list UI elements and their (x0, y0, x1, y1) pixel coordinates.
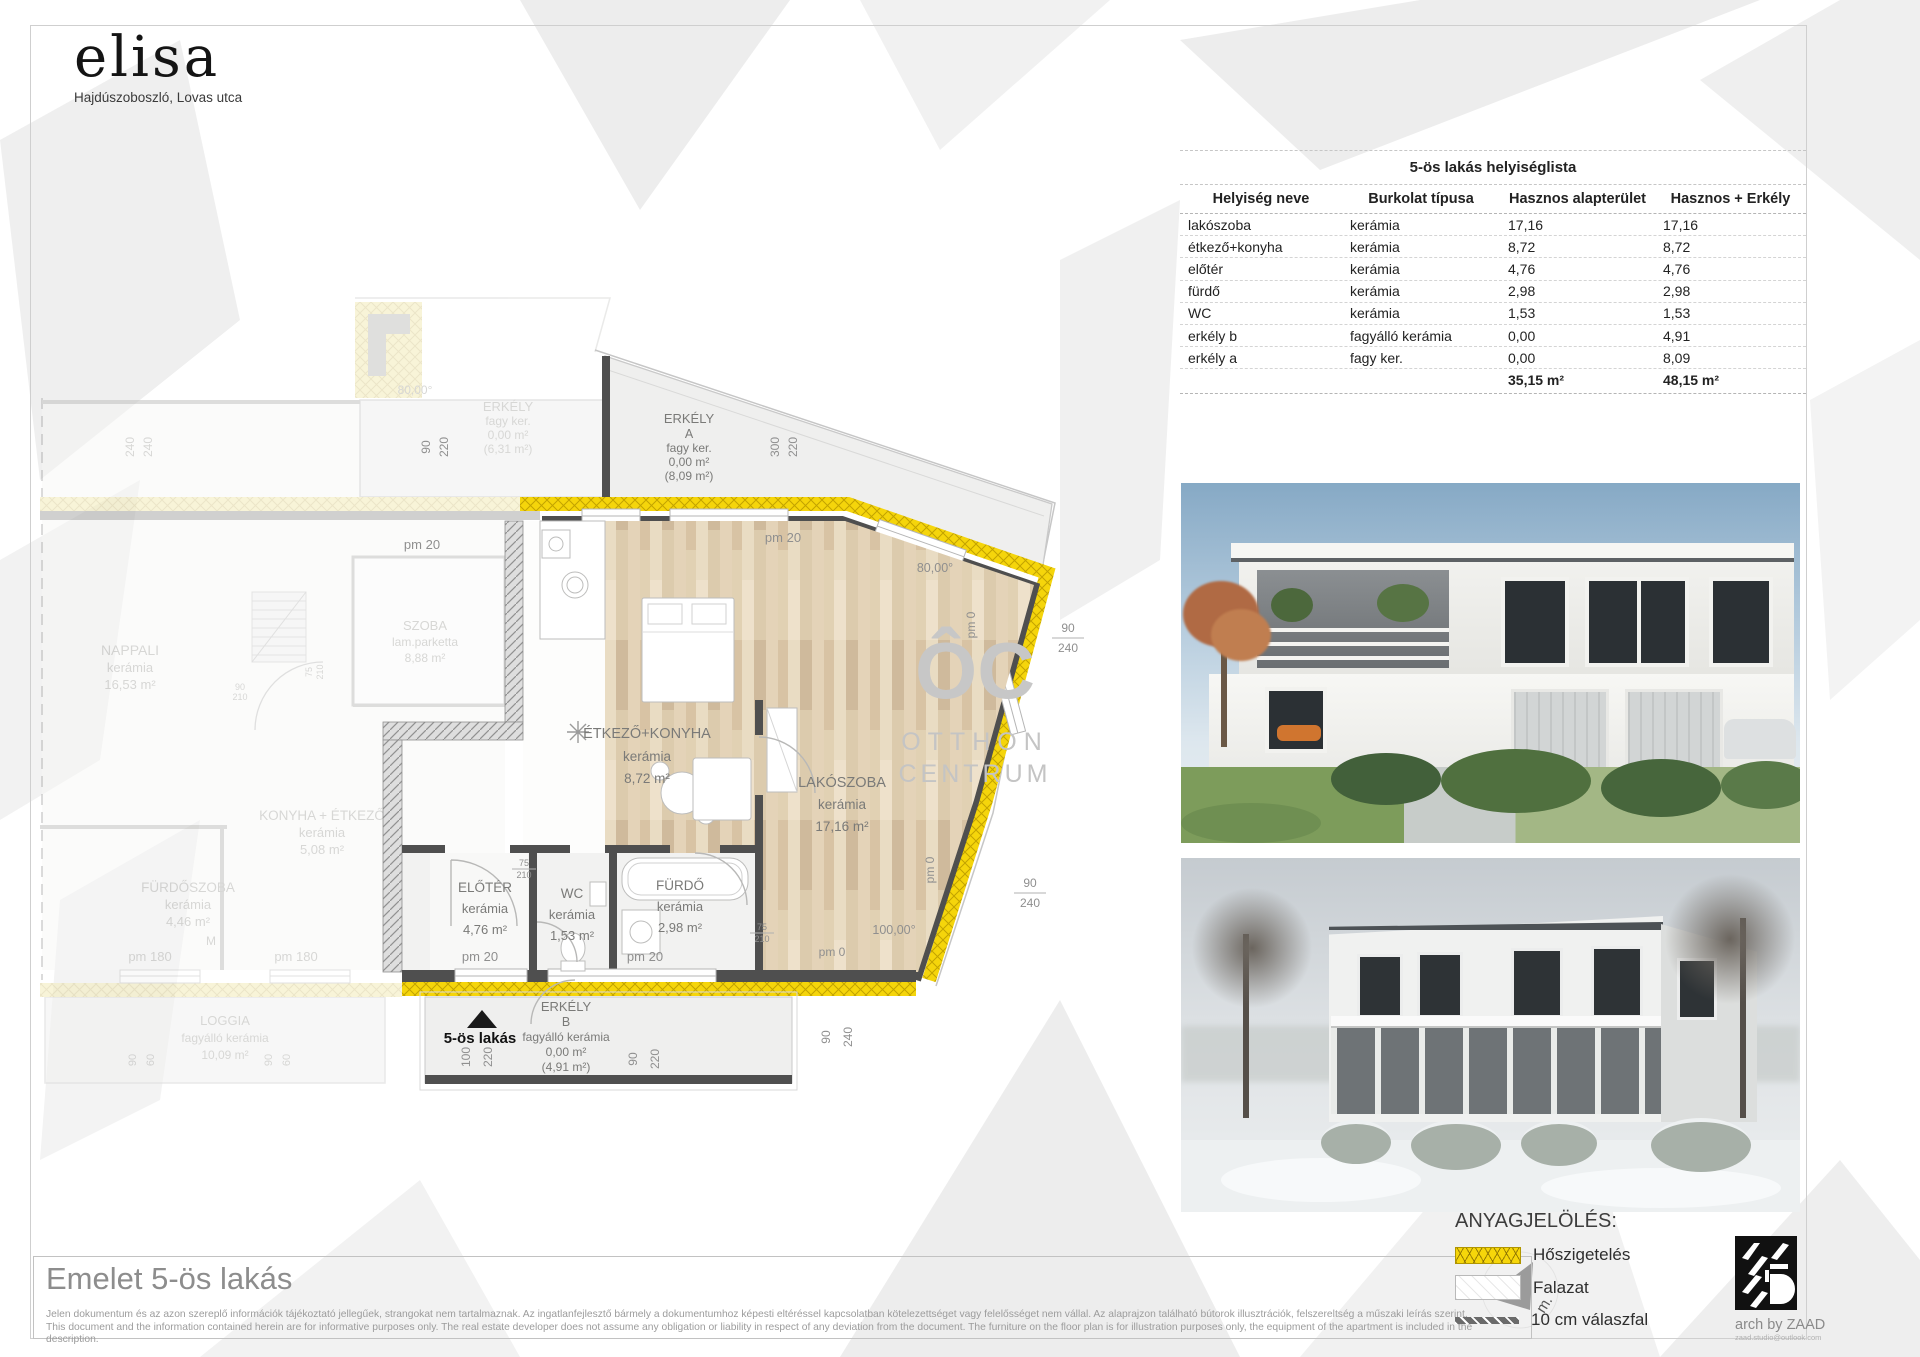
brand-logo: elisa Hajdúszoboszló, Lovas utca (74, 28, 242, 105)
legend-label: Hőszigetelés (1533, 1245, 1630, 1265)
dim: 60 (281, 1054, 293, 1066)
watermark-text: CENTRUM (899, 760, 1052, 788)
label: lam.parketta (392, 635, 458, 649)
label: (4,91 m²) (542, 1060, 591, 1074)
snow-drift (1221, 1158, 1421, 1202)
dim: 90 (419, 440, 433, 454)
party-wall (505, 521, 523, 722)
cell: kerámia (1342, 281, 1500, 302)
credit-email: zaad.studio@outlook.com (1735, 1333, 1801, 1342)
footer: Emelet 5-ös lakás Jelen dokumentum és az… (33, 1256, 1532, 1339)
dim: 75 (304, 667, 314, 677)
car (1724, 719, 1796, 759)
label: fagyálló kerámia (181, 1031, 269, 1045)
cell: 8,72 (1655, 236, 1806, 257)
page-title: Emelet 5-ös lakás (46, 1261, 292, 1297)
otthon-centrum-watermark: ÔC OTTHON CENTRUM (899, 626, 1052, 788)
dim-pm20: pm 20 (404, 537, 440, 552)
cell: 17,16 (1655, 214, 1806, 235)
dim: 90 (1023, 876, 1037, 890)
cell: fürdő (1180, 281, 1342, 302)
col-header-net-area: Hasznos alapterület (1500, 191, 1655, 207)
cell (1342, 369, 1500, 390)
dim: 90 (1061, 621, 1075, 635)
cell: étkező+konyha (1180, 236, 1342, 257)
wc-label: WC (561, 886, 584, 901)
cell: 4,76 (1500, 258, 1655, 279)
label: (6,31 m²) (484, 442, 533, 456)
label: 4,46 m² (166, 914, 211, 929)
dim: 90 (263, 1054, 275, 1066)
legend-label: 10 cm válaszfal (1531, 1310, 1648, 1330)
roof (1231, 543, 1794, 558)
dim-pm20: pm 20 (627, 949, 663, 964)
table-row: erkély afagy ker.0,008,09 (1180, 347, 1806, 369)
label: 2,98 m² (658, 920, 703, 935)
dim: 240 (841, 1027, 855, 1047)
label: B (562, 1015, 570, 1029)
dim: 90 (626, 1052, 640, 1066)
balcony-a-label: ERKÉLY (664, 411, 715, 426)
dim: 220 (437, 437, 451, 457)
ground-colonnade (1331, 1028, 1661, 1114)
angle-label: 80,00° (398, 383, 433, 397)
window (1265, 687, 1327, 753)
table-row: előtérkerámia4,764,76 (1180, 258, 1806, 280)
dim: 220 (786, 437, 800, 457)
dim-90-240: 90 240 (1014, 876, 1046, 910)
cell: 4,91 (1655, 325, 1806, 346)
snowy-shrub (1651, 1118, 1751, 1172)
table-row: erkély bfagyálló kerámia0,004,91 (1180, 325, 1806, 347)
label: kerámia (657, 899, 704, 914)
cell: kerámia (1342, 214, 1500, 235)
dim: 90 (819, 1030, 833, 1044)
cell (1180, 369, 1342, 390)
label: 17,16 m² (815, 819, 869, 834)
dim-pm0: pm 0 (923, 856, 937, 883)
label: kerámia (107, 660, 154, 675)
cell: kerámia (1342, 258, 1500, 279)
bush (1601, 759, 1721, 817)
cell: erkély b (1180, 325, 1342, 346)
col-header-net-plus-balcony: Hasznos + Erkély (1655, 191, 1806, 207)
neighbor-erkely-label: ERKÉLY (483, 399, 534, 414)
watermark-text: OTTHON (901, 728, 1049, 756)
unit-label: 5-ös lakás (444, 1030, 517, 1047)
masonry-swatch-icon (1455, 1275, 1521, 1300)
dim: 90 (235, 682, 245, 692)
cell: lakószoba (1180, 214, 1342, 235)
snow-drift (1541, 1168, 1781, 1208)
disclaimer-hu: Jelen dokumentum és az azon szereplő inf… (46, 1309, 1521, 1322)
neighbor-nappali-label: NAPPALI (101, 642, 159, 658)
table-title: 5-ös lakás helyiséglista (1180, 150, 1806, 185)
table-totals-row: 35,15 m² 48,15 m² (1180, 369, 1806, 393)
cell: erkély a (1180, 347, 1342, 368)
hall-label: ELŐTÉR (458, 880, 512, 895)
living-room-label: LAKÓSZOBA (798, 774, 886, 791)
bare-tree-branches (1187, 888, 1317, 1008)
dim: 220 (481, 1047, 495, 1067)
label: A (685, 427, 694, 441)
architect-credit: arch by ZAAD zaad.studio@outlook.com (1735, 1236, 1801, 1342)
label: 10,09 m² (201, 1048, 248, 1062)
window (1357, 954, 1403, 1018)
legend-title: ANYAGJELÖLÉS: (1455, 1210, 1805, 1233)
building-render-winter (1181, 858, 1800, 1212)
table-header: Helyiség neve Burkolat típusa Hasznos al… (1180, 185, 1806, 214)
balcony-slab (1331, 1016, 1661, 1026)
label: fagy ker. (666, 441, 711, 455)
dim: 60 (145, 1054, 157, 1066)
partition-swatch-icon (1455, 1317, 1519, 1324)
dim-pm180: pm 180 (274, 949, 317, 964)
label: fagyálló kerámia (522, 1030, 610, 1044)
disclaimer-en: This document and the information contai… (46, 1322, 1521, 1347)
cell: 0,00 (1500, 347, 1655, 368)
label: fagy ker. (485, 414, 530, 428)
tree-foliage (1211, 609, 1271, 661)
dim: 240 (1020, 896, 1040, 910)
room-list-table: 5-ös lakás helyiséglista Helyiség neve B… (1180, 150, 1806, 394)
patio-furniture (1277, 725, 1321, 741)
kitchen-label: ÉTKEZŐ+KONYHA (583, 725, 711, 742)
angle-label: 80,00° (917, 561, 953, 575)
total-net-area: 35,15 m² (1500, 369, 1655, 390)
label: 0,00 m² (546, 1045, 587, 1059)
dim: 240 (123, 437, 137, 457)
dim: 300 (768, 437, 782, 457)
label: 1,53 m² (550, 928, 595, 943)
dim: 210 (232, 692, 247, 702)
window (1591, 946, 1643, 1018)
cell: fagyálló kerámia (1342, 325, 1500, 346)
floor-plan: ERKÉLY fagy ker. 0,00 m² (6,31 m²) NAPPA… (30, 280, 1090, 1110)
stairs (252, 592, 306, 662)
table-row: étkező+konyhakerámia8,728,72 (1180, 236, 1806, 258)
dim: 210 (516, 870, 531, 880)
dim-pm20: pm 20 (765, 530, 801, 545)
window (1511, 948, 1563, 1018)
label: kerámia (818, 797, 867, 812)
label: kerámia (299, 825, 346, 840)
label: kerámia (549, 907, 596, 922)
cell: 8,09 (1655, 347, 1806, 368)
label: 16,53 m² (104, 677, 156, 692)
dim: 100 (459, 1047, 473, 1067)
dim: 210 (315, 664, 325, 679)
neighbor-szoba-label: SZOBA (403, 618, 447, 633)
neighbor-konyha-label: KONYHA + ÉTKEZŐ (259, 808, 385, 823)
cell: előtér (1180, 258, 1342, 279)
angle-label: 100,00° (872, 923, 915, 937)
label: (8,09 m²) (665, 469, 714, 483)
dim-pm0: pm 0 (819, 945, 846, 959)
dim: 220 (648, 1049, 662, 1069)
snowy-shrub (1411, 1120, 1501, 1170)
neighbor-loggia-label: LOGGIA (200, 1013, 250, 1028)
snowy-shrub (1321, 1120, 1391, 1164)
dim-90-240: 90 240 (1052, 621, 1084, 655)
bush (1181, 803, 1321, 843)
balcony (1257, 570, 1449, 668)
table-row: fürdőkerámia2,982,98 (1180, 281, 1806, 303)
label: 4,76 m² (463, 922, 508, 937)
dim: 75 (757, 922, 767, 932)
closet-m-label: M (206, 934, 216, 948)
cell: 4,76 (1655, 258, 1806, 279)
window (1417, 952, 1463, 1018)
building-render-summer (1181, 483, 1800, 843)
dim: 240 (141, 437, 155, 457)
dim-pm180: pm 180 (128, 949, 171, 964)
table-row: WCkerámia1,531,53 (1180, 303, 1806, 325)
balcony-b-label: ERKÉLY (541, 999, 592, 1014)
dim: 75 (519, 858, 529, 868)
cell: 2,98 (1655, 281, 1806, 302)
cell: fagy ker. (1342, 347, 1500, 368)
label: 0,00 m² (669, 455, 710, 469)
legend-label: Falazat (1533, 1278, 1589, 1298)
label: 0,00 m² (488, 428, 529, 442)
label: kerámia (462, 901, 509, 916)
window (1585, 577, 1689, 667)
garage-door (1625, 689, 1723, 771)
cell: WC (1180, 303, 1342, 324)
label: 5,08 m² (300, 842, 345, 857)
cell: 17,16 (1500, 214, 1655, 235)
insulation-swatch-icon (1455, 1247, 1521, 1264)
bare-tree-branches (1660, 874, 1800, 1004)
cell: 8,72 (1500, 236, 1655, 257)
table-row: lakószobakerámia17,1617,16 (1180, 214, 1806, 236)
brand-subtitle: Hajdúszoboszló, Lovas utca (74, 90, 242, 105)
bathroom-label: FÜRDŐ (656, 878, 704, 893)
label: kerámia (623, 749, 672, 764)
watermark-logo: ÔC (915, 626, 1035, 715)
neighbor-furdoszoba-label: FÜRDŐSZOBA (141, 880, 235, 895)
window (1501, 577, 1569, 667)
dim-pm20: pm 20 (462, 949, 498, 964)
col-header-flooring: Burkolat típusa (1342, 191, 1500, 207)
cell: 2,98 (1500, 281, 1655, 302)
zaad-logo-icon (1735, 1236, 1797, 1310)
snowy-shrub (1521, 1120, 1597, 1166)
dim: 240 (1058, 641, 1078, 655)
window (1709, 577, 1773, 667)
cell: kerámia (1342, 303, 1500, 324)
col-header-room: Helyiség neve (1180, 191, 1342, 207)
credit-name: arch by ZAAD (1735, 1317, 1801, 1333)
total-net-plus-balcony: 48,15 m² (1655, 369, 1806, 390)
cell: 1,53 (1655, 303, 1806, 324)
bush (1331, 753, 1441, 805)
cell: kerámia (1342, 236, 1500, 257)
bush (1441, 749, 1591, 813)
cell: 1,53 (1500, 303, 1655, 324)
label: 8,72 m² (624, 771, 670, 786)
label: 8,88 m² (405, 651, 446, 665)
label: kerámia (165, 897, 212, 912)
cell: 0,00 (1500, 325, 1655, 346)
brand-name: elisa (74, 28, 242, 88)
dim: 90 (127, 1054, 139, 1066)
dim: 210 (754, 934, 769, 944)
